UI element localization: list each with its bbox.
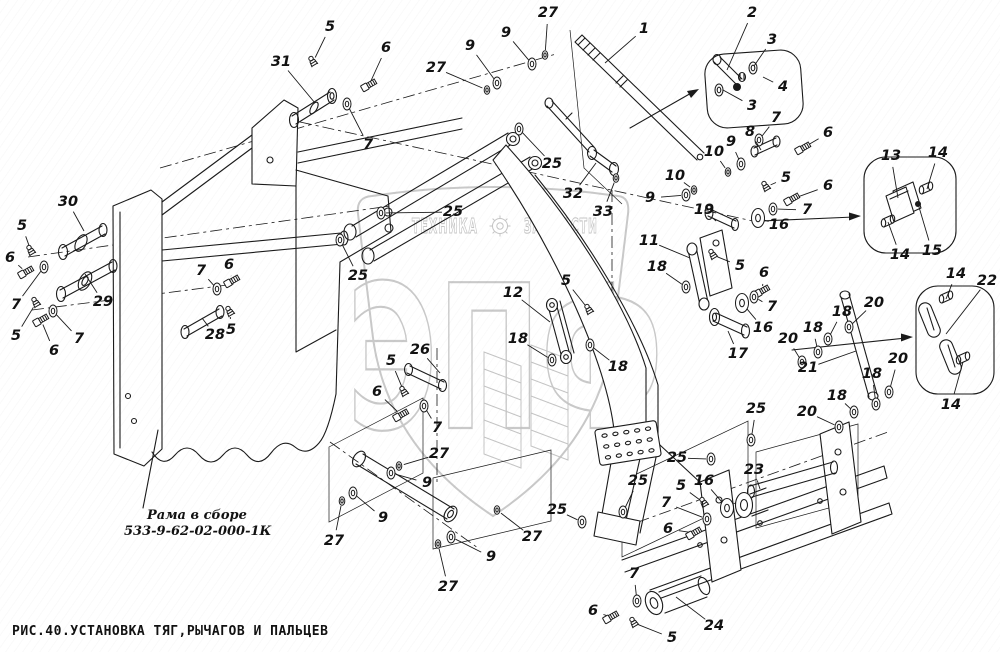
callout-number: 24 xyxy=(704,618,724,634)
callout-number: 21 xyxy=(798,360,818,376)
callout-number: 27 xyxy=(426,60,447,76)
callout-27: 27 xyxy=(324,497,345,549)
callout-5: 5 xyxy=(17,218,36,256)
gear-icon xyxy=(490,216,511,237)
callout-5: 5 xyxy=(307,19,335,67)
callout-number: 29 xyxy=(93,294,113,310)
callout-number: 6 xyxy=(759,265,769,281)
callout-4: 4 xyxy=(763,77,788,95)
callout-number: 7 xyxy=(11,297,22,313)
callout-number: 18 xyxy=(803,320,823,336)
callout-14: 14 xyxy=(888,222,910,263)
callout-number: 9 xyxy=(422,475,432,491)
callout-number: 18 xyxy=(647,259,667,275)
callout-number: 28 xyxy=(205,327,225,343)
callout-number: 10 xyxy=(665,168,685,184)
callout-number: 30 xyxy=(58,194,78,210)
callout-2: 2 xyxy=(727,5,757,70)
callout-number: 7 xyxy=(363,137,374,153)
callout-30: 30 xyxy=(58,194,84,231)
callout-number: 18 xyxy=(608,359,628,375)
figure-caption: РИС.40.УСТАНОВКА ТЯГ,РЫЧАГОВ И ПАЛЬЦЕВ xyxy=(12,624,328,639)
callout-number: 5 xyxy=(667,630,677,646)
callout-number: 27 xyxy=(522,529,543,545)
callout-number: 20 xyxy=(797,404,817,420)
callout-7: 7 xyxy=(629,566,641,607)
callout-number: 25 xyxy=(443,204,463,220)
callout-number: 5 xyxy=(561,273,571,289)
callout-25: 25 xyxy=(547,502,586,528)
callout-7: 7 xyxy=(343,98,374,153)
callout-number: 16 xyxy=(753,320,773,336)
callout-number: 7 xyxy=(629,566,640,582)
callout-number: 18 xyxy=(827,388,847,404)
callout-14: 14 xyxy=(946,266,966,299)
callout-number: 13 xyxy=(881,148,901,164)
callout-number: 26 xyxy=(410,342,430,358)
callout-27: 27 xyxy=(435,540,459,595)
callout-number: 5 xyxy=(676,478,686,494)
callout-number: 25 xyxy=(667,450,687,466)
callout-number: 7 xyxy=(432,420,443,436)
callout-number: 14 xyxy=(928,145,948,161)
callout-21: 21 xyxy=(798,351,856,376)
callout-number: 17 xyxy=(728,346,749,362)
callout-number: 9 xyxy=(486,549,496,565)
callout-number: 6 xyxy=(224,257,234,273)
callout-number: 32 xyxy=(563,186,583,202)
callout-25: 25 xyxy=(667,450,715,466)
callout-number: 27 xyxy=(429,446,450,462)
callout-9: 9 xyxy=(645,189,690,206)
frame-assembly-label-line2: 533-9-62-02-000-1К xyxy=(124,524,271,539)
callout-number: 5 xyxy=(226,322,236,338)
callout-6: 6 xyxy=(588,603,619,624)
callout-number: 9 xyxy=(726,134,736,150)
callout-number: 10 xyxy=(704,144,724,160)
callout-18: 18 xyxy=(803,320,823,358)
callout-number: 2 xyxy=(747,5,757,21)
callout-number: 5 xyxy=(325,19,335,35)
callout-1: 1 xyxy=(605,21,649,63)
callout-number: 16 xyxy=(694,473,714,489)
callout-6: 6 xyxy=(32,313,59,359)
callout-number: 33 xyxy=(593,204,613,220)
callout-number: 25 xyxy=(542,156,562,172)
callout-number: 20 xyxy=(888,351,908,367)
callout-5: 5 xyxy=(628,616,677,646)
callout-27: 27 xyxy=(538,5,559,59)
callout-9: 9 xyxy=(501,25,536,70)
callout-number: 8 xyxy=(745,124,755,140)
callout-number: 25 xyxy=(547,502,567,518)
callout-3: 3 xyxy=(754,32,777,66)
callout-number: 27 xyxy=(438,579,459,595)
callout-number: 3 xyxy=(767,32,777,48)
callout-number: 9 xyxy=(645,190,655,206)
callout-27: 27 xyxy=(494,506,543,545)
callout-number: 6 xyxy=(588,603,598,619)
callout-number: 14 xyxy=(890,247,910,263)
callout-17: 17 xyxy=(728,331,749,362)
callout-6: 6 xyxy=(794,125,833,155)
callout-number: 4 xyxy=(777,79,788,95)
callout-number: 6 xyxy=(49,343,59,359)
frame-assembly-label-line1: Рама в сборе xyxy=(147,508,247,523)
callout-28: 28 xyxy=(202,318,225,343)
callout-number: 6 xyxy=(823,178,833,194)
callout-6: 6 xyxy=(663,521,702,540)
figure-40-parts-diagram: ТЕХНИКА ЗАПЧАСТИ ЭПФ xyxy=(0,0,1000,652)
callout-22: 22 xyxy=(946,273,997,334)
callout-number: 5 xyxy=(386,353,396,369)
callout-20: 20 xyxy=(797,404,843,433)
callout-32: 32 xyxy=(563,163,596,202)
callout-5: 5 xyxy=(760,170,791,192)
callout-number: 7 xyxy=(74,331,85,347)
callout-number: 7 xyxy=(661,495,672,511)
callout-number: 5 xyxy=(17,218,27,234)
callout-number: 14 xyxy=(941,397,961,413)
callout-20: 20 xyxy=(885,351,908,398)
callout-number: 16 xyxy=(769,217,789,233)
callout-18: 18 xyxy=(862,366,882,410)
detail-bubbles xyxy=(630,49,994,394)
callout-29: 29 xyxy=(85,274,113,310)
callout-number: 5 xyxy=(735,258,745,274)
callout-number: 1 xyxy=(639,21,649,37)
exploded-view-drawing: ТЕХНИКА ЗАПЧАСТИ ЭПФ xyxy=(0,0,1000,652)
callout-9: 9 xyxy=(726,134,745,170)
callout-number: 27 xyxy=(538,5,559,21)
callout-number: 9 xyxy=(465,38,475,54)
callout-7: 7 xyxy=(769,202,813,218)
callout-number: 23 xyxy=(744,462,764,478)
callout-number: 6 xyxy=(372,384,382,400)
callout-number: 14 xyxy=(946,266,966,282)
callout-number: 19 xyxy=(694,202,714,218)
callout-number: 15 xyxy=(922,243,942,259)
callout-number: 5 xyxy=(781,170,791,186)
callout-31: 31 xyxy=(271,54,315,103)
callout-19: 19 xyxy=(694,202,716,221)
callout-number: 12 xyxy=(503,285,523,301)
callout-number: 22 xyxy=(977,273,997,289)
callout-number: 6 xyxy=(5,250,15,266)
callout-number: 25 xyxy=(628,473,648,489)
callout-9: 9 xyxy=(349,487,388,526)
callout-24: 24 xyxy=(676,597,724,634)
callout-7: 7 xyxy=(196,263,221,295)
callout-number: 7 xyxy=(196,263,207,279)
callout-number: 7 xyxy=(767,299,778,315)
callout-18: 18 xyxy=(827,388,858,418)
callout-number: 7 xyxy=(771,110,782,126)
callout-7: 7 xyxy=(49,305,85,347)
callout-number: 20 xyxy=(778,331,798,347)
callout-number: 9 xyxy=(501,25,511,41)
callout-5: 5 xyxy=(224,305,236,338)
callout-9: 9 xyxy=(465,38,501,89)
callout-3: 3 xyxy=(723,90,757,114)
callout-number: 6 xyxy=(381,40,391,56)
callout-number: 5 xyxy=(11,328,21,344)
callout-15: 15 xyxy=(919,207,942,259)
callout-number: 3 xyxy=(747,98,757,114)
callout-number: 11 xyxy=(639,233,659,249)
callout-number: 25 xyxy=(746,401,766,417)
callout-7: 7 xyxy=(750,291,778,315)
callout-number: 18 xyxy=(832,304,852,320)
callout-25: 25 xyxy=(746,401,766,446)
callout-7: 7 xyxy=(755,110,782,146)
callout-6: 6 xyxy=(360,40,391,92)
callout-6: 6 xyxy=(223,257,240,288)
callout-10: 10 xyxy=(665,168,697,194)
callout-number: 27 xyxy=(324,533,345,549)
callout-number: 18 xyxy=(862,366,882,382)
callout-number: 9 xyxy=(378,510,388,526)
callout-number: 7 xyxy=(802,202,813,218)
callout-number: 6 xyxy=(823,125,833,141)
callout-number: 18 xyxy=(508,331,528,347)
callout-number: 20 xyxy=(864,295,884,311)
callout-number: 31 xyxy=(271,54,291,70)
callout-number: 6 xyxy=(663,521,673,537)
callout-number: 25 xyxy=(348,268,368,284)
